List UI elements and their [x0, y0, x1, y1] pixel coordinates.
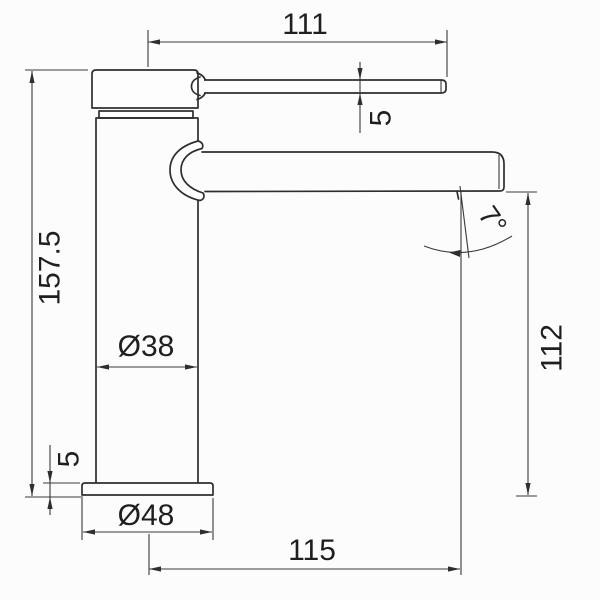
dim-label-base-thickness: 5	[53, 451, 86, 468]
technical-drawing-canvas: 111 5 157.5 Ø38	[0, 0, 600, 600]
arrow-left-icon	[83, 529, 95, 534]
dim-label-lever-thickness: 5	[365, 110, 398, 127]
dim-outlet-height: 112	[506, 192, 569, 496]
arrow-down-icon	[29, 484, 34, 496]
arrow-left-icon	[97, 364, 109, 369]
arrow-up-icon	[357, 94, 362, 106]
faucet-outline	[82, 70, 504, 495]
arrow-left-icon	[149, 566, 161, 571]
arrow-up-icon	[47, 497, 52, 509]
faucet-handle-lever	[204, 80, 446, 93]
faucet-body	[96, 118, 198, 483]
arrow-up-icon	[29, 71, 34, 83]
faucet-collar-ring	[99, 111, 193, 118]
dim-label-body-diameter: Ø38	[118, 330, 175, 363]
dim-label-lever-length: 111	[282, 8, 328, 41]
faucet-base-plate	[82, 483, 213, 495]
dim-total-height: 157.5	[25, 70, 88, 497]
arrow-left-icon	[148, 39, 160, 44]
dim-base-thickness: 5	[43, 445, 86, 515]
dim-base-diameter: Ø48	[82, 498, 213, 540]
arrow-down-icon	[47, 471, 52, 483]
dim-label-total-height: 157.5	[34, 230, 67, 305]
arrow-down-icon	[525, 483, 530, 495]
faucet-outlet-tick	[457, 192, 459, 200]
dim-label-spout-reach: 115	[288, 534, 336, 567]
arrow-right-icon	[448, 566, 460, 571]
faucet-spout-fillet	[170, 141, 204, 201]
arrow-down-icon	[357, 68, 362, 80]
dim-lever-length: 111	[148, 8, 447, 77]
faucet-spout	[202, 152, 504, 192]
faucet-dimension-diagram: 111 5 157.5 Ø38	[0, 0, 600, 600]
arrow-up-icon	[525, 193, 530, 205]
dim-spout-reach: 115	[149, 534, 460, 575]
arrow-angle-icon	[449, 250, 461, 257]
dim-outlet-angle: 7°	[424, 186, 513, 575]
dim-body-diameter: Ø38	[97, 330, 197, 370]
arrow-right-icon	[435, 39, 447, 44]
arrow-right-icon	[200, 529, 212, 534]
faucet-handle-cap	[92, 70, 198, 108]
dim-lever-thickness: 5	[357, 62, 397, 133]
dim-label-base-diameter: Ø48	[118, 499, 175, 532]
dim-label-outlet-angle: 7°	[472, 200, 513, 240]
dim-label-outlet-height: 112	[536, 324, 569, 372]
arrow-right-icon	[185, 364, 197, 369]
